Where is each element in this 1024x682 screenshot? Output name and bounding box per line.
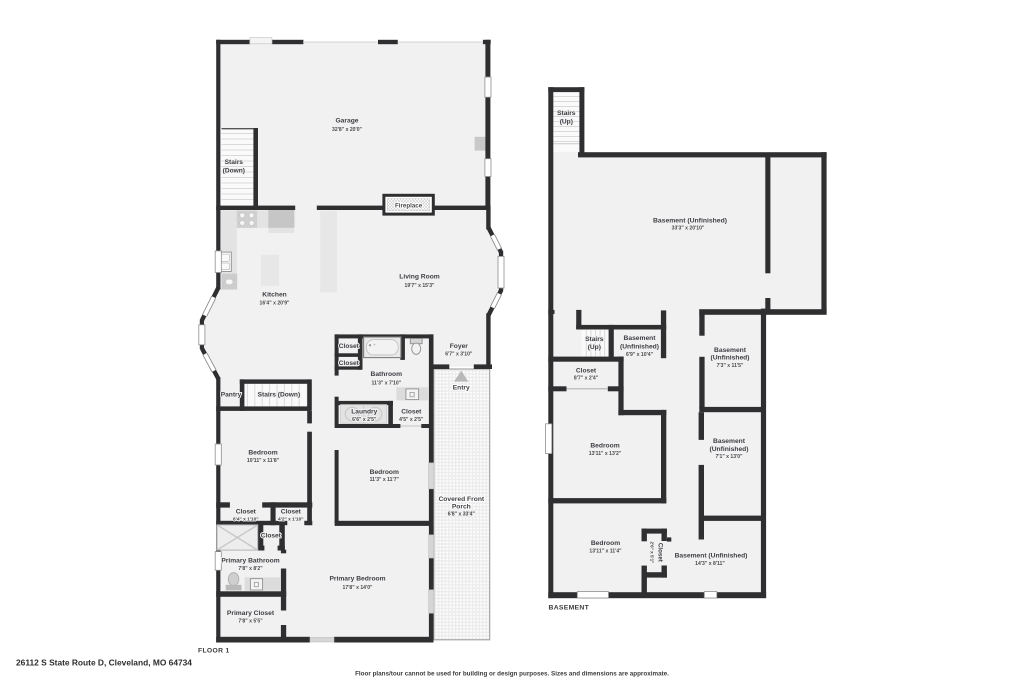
svg-text:17'8" x 14'0": 17'8" x 14'0" [343,585,373,591]
svg-text:10'11" x 11'8": 10'11" x 11'8" [247,458,280,464]
svg-text:Stairs (Down): Stairs (Down) [258,392,301,399]
svg-text:Living Room: Living Room [399,274,440,281]
svg-text:7'8" x 8'2": 7'8" x 8'2" [238,566,263,572]
svg-text:Basement: Basement [624,335,657,342]
svg-text:Basement: Basement [713,438,746,445]
svg-text:Closet: Closet [339,343,360,350]
svg-text:4'5" x 2'5": 4'5" x 2'5" [399,417,424,423]
svg-text:Stairs: Stairs [557,110,576,117]
svg-text:Primary Bathroom: Primary Bathroom [221,558,279,565]
svg-text:Closet: Closet [281,508,302,515]
svg-text:Foyer: Foyer [450,343,469,350]
svg-text:Closet: Closet [401,409,422,416]
svg-text:Closet: Closet [657,543,664,562]
svg-text:Bedroom: Bedroom [370,469,399,476]
svg-text:11'3" x 11'7": 11'3" x 11'7" [370,477,400,483]
svg-text:2'6" x 5'1": 2'6" x 5'1" [649,541,654,563]
svg-text:Bedroom: Bedroom [590,443,619,450]
svg-text:Primary Bedroom: Primary Bedroom [329,576,385,583]
svg-text:Bathroom: Bathroom [371,371,403,378]
svg-text:Closet: Closet [576,368,597,375]
svg-text:Primary Closet: Primary Closet [227,610,275,617]
svg-text:7'8" x 5'5": 7'8" x 5'5" [238,619,263,625]
svg-text:26112 S State Route D, Clevela: 26112 S State Route D, Cleveland, MO 647… [16,657,192,667]
svg-text:Closet: Closet [236,508,257,515]
svg-text:(Unfinished): (Unfinished) [620,344,659,351]
svg-text:Covered Front: Covered Front [438,496,484,503]
svg-text:(Down): (Down) [223,167,245,174]
svg-text:6'9" x 10'4": 6'9" x 10'4" [626,352,654,358]
svg-text:BASEMENT: BASEMENT [549,604,590,611]
svg-text:33'3" x 20'10": 33'3" x 20'10" [672,226,705,232]
svg-text:6'8" x 33'4": 6'8" x 33'4" [448,512,476,518]
svg-text:(Up): (Up) [560,119,573,126]
svg-text:Fireplace: Fireplace [395,203,423,210]
svg-text:13'11" x 11'4": 13'11" x 11'4" [589,548,622,554]
svg-text:Basement (Unfinished): Basement (Unfinished) [653,218,727,225]
svg-text:Closet: Closet [339,360,360,367]
svg-text:Stairs: Stairs [585,336,604,343]
svg-text:6'7" x 3'10": 6'7" x 3'10" [445,351,473,357]
svg-text:6'6" x 2'5": 6'6" x 2'5" [352,417,377,423]
svg-text:4'2" x 1'10": 4'2" x 1'10" [278,516,304,522]
svg-text:8'7" x 2'4": 8'7" x 2'4" [574,376,599,382]
svg-text:Floor plans/tour cannot be use: Floor plans/tour cannot be used for buil… [355,671,669,678]
svg-text:Garage: Garage [335,118,358,125]
svg-text:Entry: Entry [453,385,470,392]
svg-text:Basement (Unfinished): Basement (Unfinished) [675,552,748,559]
svg-text:(Unfinished): (Unfinished) [710,355,749,362]
svg-text:13'11" x 13'2": 13'11" x 13'2" [589,451,622,457]
svg-text:Basement: Basement [714,347,747,354]
svg-text:19'7" x 15'3": 19'7" x 15'3" [405,283,435,289]
svg-text:7'3" x 11'5": 7'3" x 11'5" [717,363,744,369]
svg-text:16'4" x 20'9": 16'4" x 20'9" [260,301,290,307]
svg-text:Stairs: Stairs [225,159,244,166]
svg-text:32'8" x 20'0": 32'8" x 20'0" [332,127,362,133]
svg-text:(Up): (Up) [588,344,601,351]
svg-text:Porch: Porch [452,503,471,510]
svg-text:14'3" x 8'11": 14'3" x 8'11" [695,561,725,567]
svg-text:Laundry: Laundry [351,409,377,416]
svg-text:Kitchen: Kitchen [262,291,287,298]
svg-text:Bedroom: Bedroom [591,540,620,547]
svg-text:(Unfinished): (Unfinished) [709,446,748,453]
svg-text:Pantry: Pantry [221,392,242,399]
svg-text:Closet: Closet [261,533,282,540]
svg-text:6'4" x 1'10": 6'4" x 1'10" [233,516,259,522]
svg-text:7'1" x 13'0": 7'1" x 13'0" [715,454,743,460]
svg-text:FLOOR 1: FLOOR 1 [198,648,230,655]
svg-text:Bedroom: Bedroom [248,450,277,457]
svg-text:11'3" x 7'10": 11'3" x 7'10" [371,380,401,386]
